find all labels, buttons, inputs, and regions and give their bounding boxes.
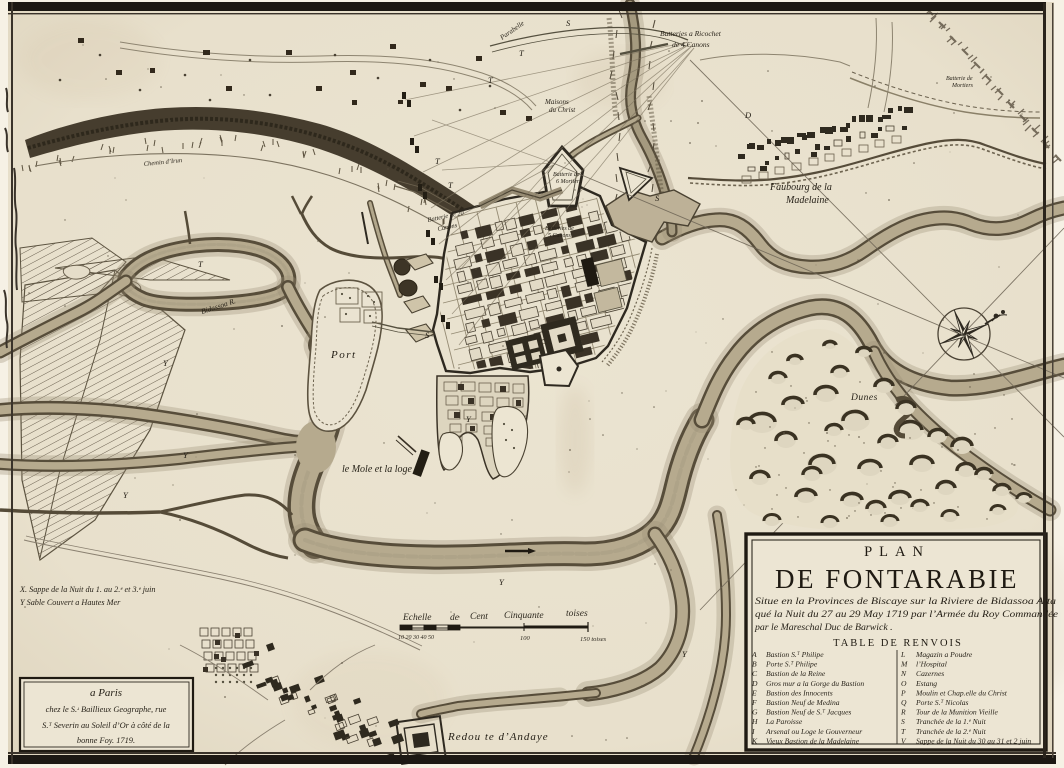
svg-text:Bastion de la Reine: Bastion de la Reine (766, 669, 826, 678)
svg-text:M: M (900, 660, 908, 669)
svg-text:100: 100 (520, 635, 531, 642)
svg-text:du Christ: du Christ (549, 106, 576, 114)
svg-text:toises: toises (566, 609, 588, 619)
svg-text:H: H (751, 717, 758, 726)
svg-text:Gros mur a la Gorge du Bastion: Gros mur a la Gorge du Bastion (766, 679, 864, 688)
svg-text:Cent: Cent (470, 612, 488, 622)
svg-text:R: R (900, 708, 906, 717)
svg-text:Bastion Neuf de Medina: Bastion Neuf de Medina (766, 698, 840, 707)
svg-text:I: I (751, 727, 755, 736)
svg-text:10 20 30 40 50: 10 20 30 40 50 (398, 634, 434, 641)
svg-text:Batteries de: Batteries de (545, 226, 574, 232)
svg-text:N: N (900, 669, 907, 678)
svg-text:Vieux Bastion de la Madelaine: Vieux Bastion de la Madelaine (766, 736, 860, 745)
svg-text:a Paris: a Paris (90, 687, 122, 699)
svg-text:Batterie de: Batterie de (553, 172, 580, 178)
svg-text:Magazin a Poudre: Magazin a Poudre (915, 650, 973, 659)
svg-text:Arsenal ou Loge le Gouverneur: Arsenal ou Loge le Gouverneur (765, 727, 862, 736)
svg-text:A: A (751, 650, 757, 659)
svg-text:qué la Nuit du 27 au 29 May 1: qué la Nuit du 27 au 29 May 1719 par l’A… (755, 609, 1059, 620)
svg-text:Echelle: Echelle (402, 613, 431, 623)
svg-text:La Paroisse: La Paroisse (765, 717, 803, 726)
svg-text:Situe en la Provinces de Bisca: Situe en la Provinces de Biscaye sur la … (755, 596, 1056, 607)
svg-text:le Mole et la loge: le Mole et la loge (342, 464, 413, 475)
svg-text:Bastion S.ᵀ Philipe: Bastion S.ᵀ Philipe (766, 650, 824, 659)
svg-text:K: K (751, 736, 758, 745)
svg-text:Tranchée de la 2.ᵉ Nuit: Tranchée de la 2.ᵉ Nuit (916, 727, 987, 736)
svg-text:Maisons: Maisons (544, 98, 569, 106)
svg-text:Cazernes: Cazernes (916, 669, 944, 678)
svg-text:5 Canons: 5 Canons (548, 233, 572, 239)
svg-text:Q: Q (901, 698, 907, 707)
svg-text:Tranchée de la 1.ᵉ Nuit: Tranchée de la 1.ᵉ Nuit (916, 717, 987, 726)
svg-text:Mortiers: Mortiers (951, 83, 974, 89)
svg-text:Sappe de la Nuit du 30 au 31 e: Sappe de la Nuit du 30 au 31 et 2 juin (916, 736, 1031, 745)
svg-text:G: G (752, 708, 758, 717)
svg-text:TABLE DE RENVOIS: TABLE DE RENVOIS (833, 638, 963, 649)
svg-text:Dunes: Dunes (850, 393, 878, 403)
svg-text:de 4 Canons: de 4 Canons (672, 40, 710, 49)
svg-text:F: F (751, 698, 757, 707)
svg-text:L: L (900, 650, 905, 659)
svg-text:S: S (901, 717, 905, 726)
svg-text:E: E (751, 688, 757, 697)
svg-text:Faubourg de la: Faubourg de la (769, 182, 832, 193)
svg-text:bonne Foy. 1719.: bonne Foy. 1719. (77, 736, 135, 745)
svg-text:D: D (751, 679, 758, 688)
svg-text:X. Sappe de la Nuit du 1. au 2: X. Sappe de la Nuit du 1. au 2.ᵉ et 3.ᵉ … (19, 585, 156, 594)
svg-text:B: B (752, 660, 757, 669)
svg-text:Moulin et Chap.elle du Christ: Moulin et Chap.elle du Christ (915, 688, 1008, 697)
svg-text:D: D (744, 110, 752, 120)
svg-text:Batterie de: Batterie de (946, 76, 973, 82)
svg-text:S.ᵀ Severin au Soleil d’Or à c: S.ᵀ Severin au Soleil d’Or à côté de la (42, 721, 170, 730)
svg-text:Estang: Estang (915, 679, 937, 688)
svg-text:P: P (900, 688, 906, 697)
svg-text:chez le S.ʴ Baillieux Geograp: chez le S.ʴ Baillieux Geographe, rue (46, 705, 167, 714)
svg-text:par le Mareschal Duc de Barwic: par le Mareschal Duc de Barwick . (754, 622, 893, 633)
svg-text:150 toises: 150 toises (580, 636, 607, 643)
svg-text:Y Sable Couvert a Hautes Mer: Y Sable Couvert a Hautes Mer (20, 598, 121, 607)
svg-text:Port: Port (330, 349, 357, 361)
svg-text:Madelaine: Madelaine (785, 195, 829, 206)
svg-text:Batteries a Ricochet: Batteries a Ricochet (660, 29, 722, 38)
svg-text:l’Hospital: l’Hospital (916, 660, 947, 669)
svg-text:Bastion des Innocents: Bastion des Innocents (766, 688, 833, 697)
svg-text:DE FONTARABIE: DE FONTARABIE (775, 564, 1019, 594)
svg-text:Porte S.ᵀ Philipe: Porte S.ᵀ Philipe (765, 660, 818, 669)
svg-text:de: de (450, 613, 459, 623)
svg-text:6 Mortiers: 6 Mortiers (556, 179, 582, 185)
svg-text:Cinquante: Cinquante (504, 611, 544, 621)
svg-text:O: O (901, 679, 907, 688)
svg-text:Redou te d’Andaye: Redou te d’Andaye (447, 731, 549, 743)
svg-text:Porte S.ᵀ Nicolas: Porte S.ᵀ Nicolas (915, 698, 969, 707)
svg-text:Bastion Neuf de S.ᵀ Jacques: Bastion Neuf de S.ᵀ Jacques (766, 708, 851, 717)
svg-text:PLAN: PLAN (864, 544, 930, 560)
svg-text:Tour de la Munition Vieille: Tour de la Munition Vieille (916, 708, 998, 717)
